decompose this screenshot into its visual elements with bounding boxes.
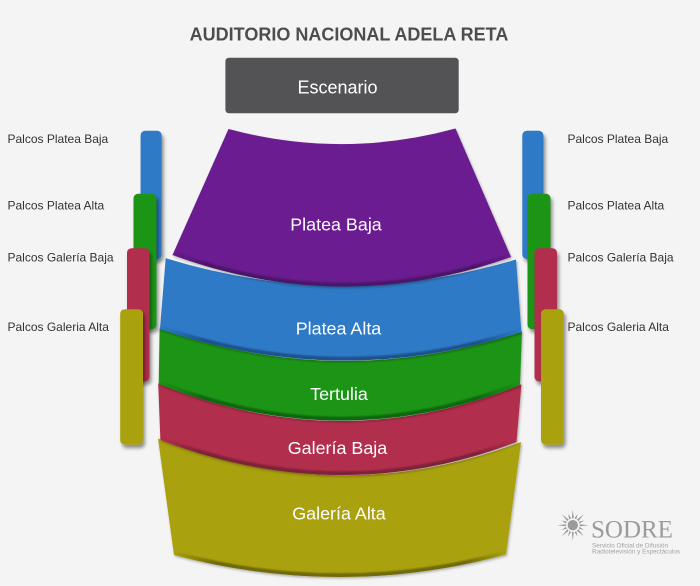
svg-text:Palcos Galeria Alta: Palcos Galeria Alta: [8, 320, 110, 334]
svg-text:Galería Baja: Galería Baja: [288, 438, 387, 458]
svg-text:Tertulia: Tertulia: [310, 384, 368, 404]
svg-text:Platea Baja: Platea Baja: [290, 214, 382, 234]
svg-text:Radiotelevisión y Espectáculos: Radiotelevisión y Espectáculos: [592, 548, 680, 555]
svg-text:Galería Alta: Galería Alta: [292, 504, 386, 524]
svg-text:Palcos Platea Alta: Palcos Platea Alta: [568, 199, 665, 213]
svg-text:SODRE: SODRE: [591, 516, 673, 543]
svg-text:Palcos Platea Alta: Palcos Platea Alta: [8, 199, 105, 213]
svg-text:Palcos Galería Baja: Palcos Galería Baja: [568, 251, 674, 265]
svg-text:AUDITORIO NACIONAL ADELA RETA: AUDITORIO NACIONAL ADELA RETA: [190, 25, 509, 45]
svg-text:Palcos Platea Baja: Palcos Platea Baja: [568, 132, 669, 146]
svg-text:Platea Alta: Platea Alta: [296, 319, 382, 339]
svg-text:Escenario: Escenario: [297, 77, 377, 97]
svg-text:Palcos Galeria Alta: Palcos Galeria Alta: [568, 320, 670, 334]
svg-text:Palcos Platea Baja: Palcos Platea Baja: [8, 132, 109, 146]
svg-text:Palcos Galería Baja: Palcos Galería Baja: [8, 251, 114, 265]
